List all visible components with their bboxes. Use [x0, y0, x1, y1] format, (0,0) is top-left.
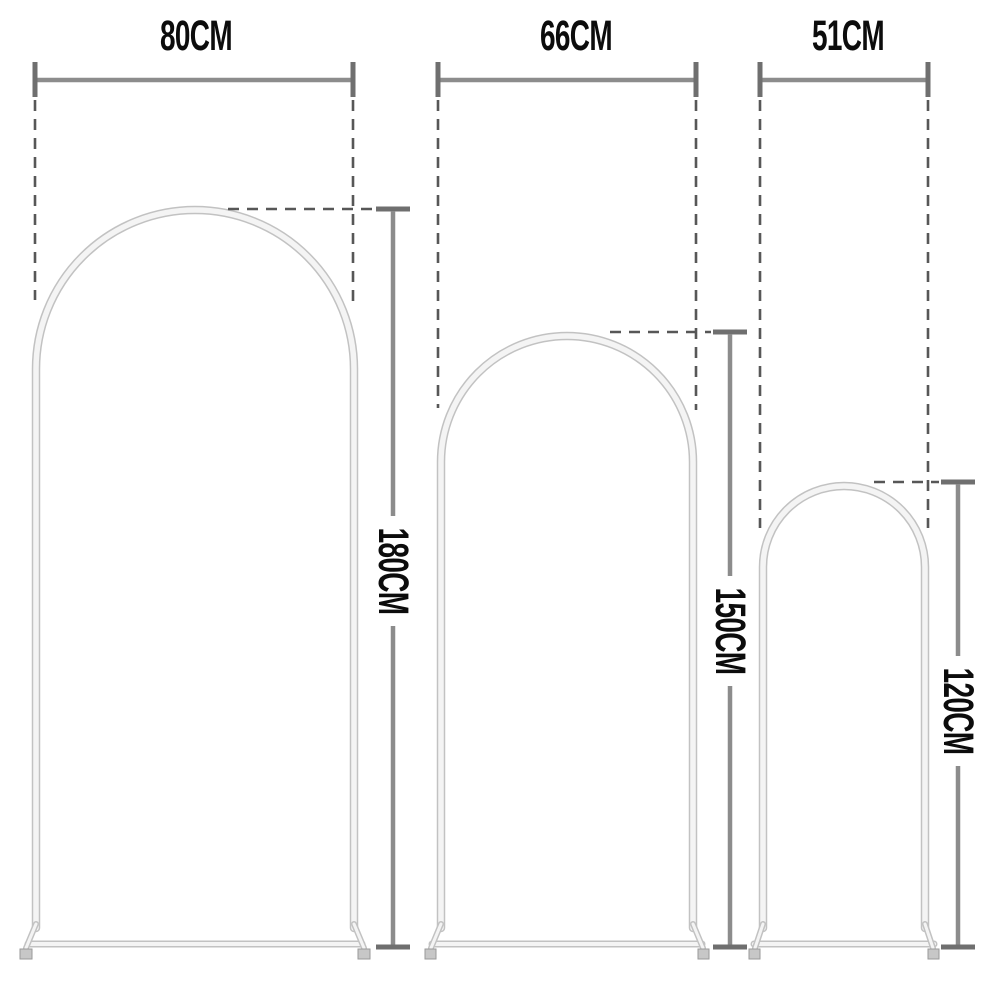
- small-arch-right-foot: [928, 949, 939, 959]
- medium-arch-right-foot: [698, 949, 709, 959]
- medium-arch-width-label: 66CM: [524, 16, 628, 56]
- medium-arch-height-label: 150CM: [710, 579, 750, 683]
- medium-arch-tube-outline: [441, 336, 693, 928]
- large-arch-frame: [20, 210, 370, 959]
- medium-arch-left-foot: [425, 949, 436, 959]
- product-dimension-diagram: 80CM 66CM 51CM 180CM 150CM 120CM: [0, 0, 1000, 1000]
- large-arch-right-foot: [358, 949, 370, 959]
- small-arch-tube: [763, 486, 925, 928]
- large-arch-tube-outline: [36, 210, 354, 928]
- small-arch-left-foot: [749, 949, 760, 959]
- medium-arch-frame: [425, 336, 709, 959]
- large-arch-width-label: 80CM: [144, 16, 248, 56]
- small-arch-frame: [749, 486, 939, 959]
- small-arch-width-label: 51CM: [796, 16, 900, 56]
- large-arch-left-foot: [20, 949, 32, 959]
- large-arch-tube: [36, 210, 354, 928]
- small-arch-tube-outline: [763, 486, 925, 928]
- small-arch-height-label: 120CM: [938, 659, 978, 763]
- medium-arch-tube: [441, 336, 693, 928]
- medium-arch-dimension-marks: [438, 62, 747, 947]
- large-arch-height-label: 180CM: [373, 519, 413, 623]
- diagram-graphics: [0, 0, 1000, 1000]
